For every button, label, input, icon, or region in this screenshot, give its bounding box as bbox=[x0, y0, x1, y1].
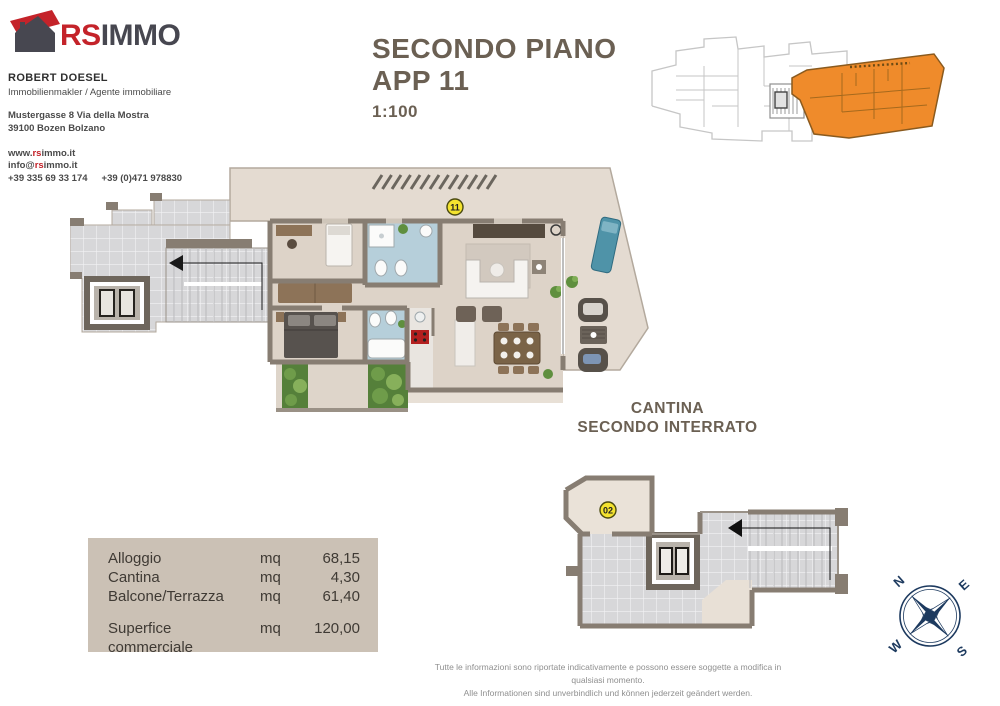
row-label: Balcone/Terrazza bbox=[108, 587, 260, 606]
cantina-number-badge: 02 bbox=[600, 502, 616, 518]
main-floor-plan: 11 bbox=[70, 160, 650, 412]
table-row: Balcone/Terrazza mq 61,40 bbox=[108, 587, 360, 606]
table-total-row: Superfice commerciale mq 120,00 bbox=[108, 619, 360, 657]
cantina-heading-line2: SECONDO INTERRATO bbox=[555, 418, 780, 437]
company-logo: RSIMMO bbox=[10, 8, 190, 54]
row-unit: mq bbox=[260, 568, 300, 587]
agent-address-line1: Mustergasse 8 Via della Mostra bbox=[8, 110, 182, 123]
hall-sideboard bbox=[278, 283, 352, 303]
elevator-icon bbox=[84, 276, 150, 330]
compass-south-label: S bbox=[954, 643, 971, 660]
row-value: 68,15 bbox=[300, 549, 360, 568]
compass-rose: N E S W bbox=[875, 558, 985, 674]
area-table: Alloggio mq 68,15 Cantina mq 4,30 Balcon… bbox=[88, 538, 378, 652]
apartment-number-badge: 11 bbox=[447, 199, 463, 215]
footer-disclaimer: Tutte le informazioni sono riportate ind… bbox=[428, 661, 788, 701]
total-value: 120,00 bbox=[300, 619, 360, 657]
page-title: SECONDO PIANO APP 11 1:100 bbox=[372, 33, 617, 122]
row-label: Cantina bbox=[108, 568, 260, 587]
row-label: Alloggio bbox=[108, 549, 260, 568]
table-row: Alloggio mq 68,15 bbox=[108, 549, 360, 568]
stairs bbox=[166, 239, 270, 322]
row-unit: mq bbox=[260, 549, 300, 568]
cooktop bbox=[411, 330, 429, 344]
disclaimer-line-de: Alle Informationen sind unverbindlich un… bbox=[428, 687, 788, 700]
elevator-icon bbox=[646, 532, 700, 590]
agent-name: ROBERT DOESEL bbox=[8, 72, 182, 84]
agent-address-line2: 39100 Bozen Bolzano bbox=[8, 123, 182, 136]
table-row: Cantina mq 4,30 bbox=[108, 568, 360, 587]
row-value: 61,40 bbox=[300, 587, 360, 606]
svg-text:02: 02 bbox=[603, 506, 613, 516]
svg-text:11: 11 bbox=[450, 203, 460, 213]
row-unit: mq bbox=[260, 587, 300, 606]
agent-role: Immobilienmakler / Agente immobiliare bbox=[8, 87, 182, 98]
total-unit: mq bbox=[260, 619, 300, 657]
compass-east-label: E bbox=[956, 576, 973, 593]
disclaimer-line-it: Tutte le informazioni sono riportate ind… bbox=[428, 661, 788, 687]
agent-website: www.rsimmo.it bbox=[8, 148, 182, 161]
compass-north-label: N bbox=[890, 573, 907, 590]
row-value: 4,30 bbox=[300, 568, 360, 587]
plan-scale: 1:100 bbox=[372, 102, 617, 122]
house-icon bbox=[10, 10, 60, 52]
brand-wordmark: RSIMMO bbox=[60, 19, 181, 52]
floor-title: SECONDO PIANO bbox=[372, 33, 617, 65]
cantina-floor-plan: 02 bbox=[552, 468, 848, 668]
cantina-heading-line1: CANTINA bbox=[555, 399, 780, 418]
cantina-heading: CANTINA SECONDO INTERRATO bbox=[555, 399, 780, 438]
total-label: Superfice commerciale bbox=[108, 619, 260, 657]
compass-west-label: W bbox=[886, 636, 906, 656]
building-overview-plan bbox=[642, 26, 952, 154]
apartment-title: APP 11 bbox=[372, 65, 617, 97]
bedroom-furniture bbox=[276, 312, 346, 358]
